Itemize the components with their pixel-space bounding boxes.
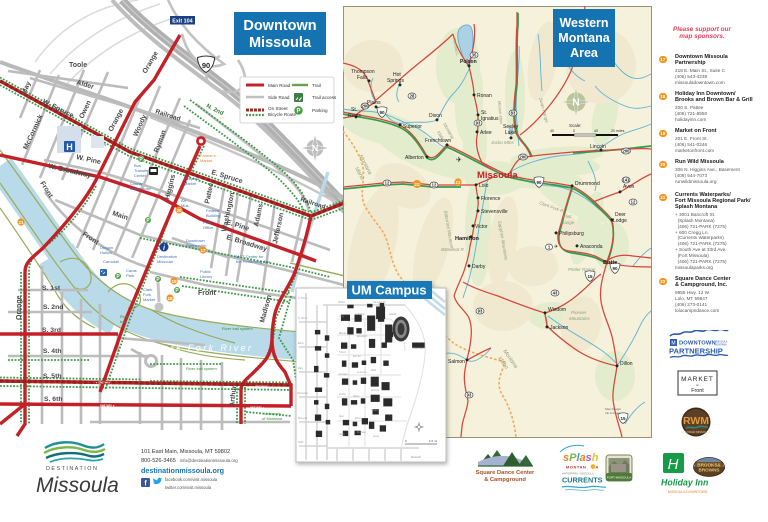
svg-text:trail: trail [120, 319, 127, 324]
svg-text:90: 90 [379, 110, 385, 115]
svg-text:Plains: Plains [367, 100, 381, 106]
svg-text:Railroad: Railroad [299, 196, 326, 211]
svg-text:Center: Center [134, 173, 147, 178]
svg-text:RUN WILD MISSOULA: RUN WILD MISSOULA [681, 430, 710, 434]
svg-text:Range: Range [561, 220, 575, 225]
svg-text:Exit 104: Exit 104 [172, 18, 192, 24]
svg-text:Trail: Trail [312, 83, 321, 88]
svg-text:Missoula: Missoula [249, 35, 312, 51]
svg-text:Courthouse: Courthouse [130, 186, 151, 191]
svg-text:RWM: RWM [683, 415, 709, 427]
svg-text:S. 2nd: S. 2nd [43, 304, 63, 311]
svg-text:Downtown: Downtown [243, 18, 316, 34]
svg-text:Campus Dr.: Campus Dr. [373, 301, 387, 304]
svg-text:Lolo: Lolo [479, 183, 489, 189]
svg-text:Market: Market [184, 181, 197, 186]
svg-text:Ryman: Ryman [153, 129, 168, 153]
svg-text:facebook.com/visit.missoula: facebook.com/visit.missoula [165, 477, 218, 482]
svg-text:Library: Library [200, 274, 212, 279]
svg-text:93: 93 [478, 309, 483, 314]
svg-text:90: 90 [536, 180, 542, 185]
svg-text:90: 90 [202, 61, 210, 70]
svg-text:40: 40 [550, 129, 554, 133]
svg-text:Pioneer: Pioneer [571, 310, 587, 315]
svg-text:Butte: Butte [603, 260, 617, 266]
svg-text:Main: Main [111, 210, 128, 222]
svg-text:Trail access: Trail access [312, 95, 337, 100]
svg-text:83: 83 [511, 111, 516, 116]
svg-text:Adams: Adams [389, 313, 397, 316]
svg-text:43: 43 [553, 291, 558, 296]
svg-text:info@destinationmissoula.org: info@destinationmissoula.org [180, 458, 238, 463]
svg-text:H: H [668, 456, 679, 473]
svg-text:Arlee: Arlee [480, 130, 492, 136]
svg-text:Anaconda: Anaconda [580, 244, 603, 250]
svg-text:MISSOULA DOWNTOWN: MISSOULA DOWNTOWN [668, 490, 708, 494]
svg-text:Mus.: Mus. [181, 203, 190, 208]
svg-text:MARKET: MARKET [681, 376, 714, 383]
svg-text:Mountains: Mountains [569, 316, 591, 321]
svg-text:Front: Front [198, 290, 217, 297]
svg-text:12: 12 [631, 200, 636, 205]
svg-text:21: 21 [18, 220, 24, 225]
svg-text:Market: Market [200, 158, 213, 163]
svg-text:Alberton: Alberton [405, 155, 424, 161]
svg-text:Madison: Madison [259, 294, 273, 323]
svg-text:Polson: Polson [460, 59, 477, 65]
svg-text:Front: Front [38, 180, 54, 199]
svg-text:Montana: Montana [558, 31, 610, 45]
svg-text:800-526-3465: 800-526-3465 [141, 458, 176, 464]
svg-text:19: 19 [171, 279, 177, 284]
svg-text:N. 2nd: N. 2nd [205, 103, 224, 117]
svg-text:Regis: Regis [348, 113, 361, 119]
svg-text:Front: Front [691, 388, 704, 394]
svg-text:twitter.com/visit.missoula: twitter.com/visit.missoula [165, 485, 212, 490]
svg-text:destinationmissoula.org: destinationmissoula.org [141, 466, 224, 475]
svg-text:Main Road: Main Road [268, 83, 291, 88]
svg-text:S. 6th E.: S. 6th E. [298, 317, 308, 320]
svg-text:Springs: Springs [387, 78, 404, 84]
svg-text:H: H [66, 142, 73, 152]
svg-text:PARTNERSHIP: PARTNERSHIP [669, 347, 723, 356]
svg-text:Ignatius: Ignatius [481, 116, 499, 122]
svg-text:141: 141 [623, 178, 631, 183]
svg-text:Market: Market [143, 297, 156, 302]
svg-text:Victor: Victor [475, 224, 488, 230]
svg-text:17: 17 [200, 248, 206, 253]
svg-text:20 miles: 20 miles [611, 129, 625, 133]
svg-text:40: 40 [594, 129, 598, 133]
svg-text:200: 200 [520, 155, 528, 160]
svg-text:MONTAN: MONTAN [566, 464, 586, 469]
svg-text:Flint: Flint [563, 214, 572, 219]
svg-text:On Street: On Street [268, 106, 288, 111]
svg-text:DESTINATION: DESTINATION [46, 466, 98, 472]
svg-text:Florence: Florence [481, 196, 501, 202]
svg-text:Dixon: Dixon [429, 113, 442, 119]
svg-text:12: 12 [385, 181, 390, 186]
svg-text:Western: Western [559, 16, 608, 30]
svg-text:& Campground: & Campground [484, 477, 526, 483]
svg-text:Missoula: Missoula [477, 170, 518, 181]
svg-text:✈: ✈ [456, 157, 462, 164]
svg-text:18: 18 [167, 296, 173, 301]
svg-text:Carousel: Carousel [103, 259, 119, 264]
svg-text:23: 23 [456, 180, 461, 185]
svg-text:Hamilton: Hamilton [455, 236, 480, 242]
svg-text:BROWNS: BROWNS [699, 468, 720, 473]
svg-text:N: N [312, 143, 318, 153]
svg-text:Park: Park [126, 273, 134, 278]
svg-text:Falls: Falls [357, 75, 368, 81]
svg-text:Ronan: Ronan [477, 93, 492, 99]
svg-text:0: 0 [573, 129, 575, 133]
svg-text:Lincoln: Lincoln [590, 144, 606, 150]
svg-text:Holiday Inn: Holiday Inn [661, 478, 708, 488]
svg-text:Square Dance Center: Square Dance Center [476, 470, 535, 476]
svg-text:Bicycle Route: Bicycle Route [268, 112, 297, 117]
svg-text:✈: ✈ [554, 244, 558, 250]
svg-text:Superior: Superior [403, 124, 422, 130]
svg-text:Jocko Mtns: Jocko Mtns [490, 140, 515, 145]
svg-text:FORT MISSOULA: FORT MISSOULA [607, 476, 631, 480]
svg-text:Side Road: Side Road [268, 95, 290, 100]
svg-text:Area: Area [570, 46, 599, 60]
svg-text:Missoula: Missoula [36, 474, 119, 497]
svg-text:Building: Building [206, 213, 220, 218]
svg-text:Stevensville: Stevensville [481, 209, 508, 215]
svg-text:28: 28 [410, 94, 415, 99]
svg-text:Wisdom: Wisdom [548, 307, 566, 313]
svg-text:CURRENTS: CURRENTS [562, 476, 603, 485]
svg-text:Darby: Darby [472, 264, 486, 270]
svg-text:Philipsburg: Philipsburg [559, 231, 584, 237]
svg-text:200: 200 [623, 149, 631, 154]
svg-text:101 East Main, Missoula, MT 59: 101 East Main, Missoula, MT 59802 [141, 449, 230, 455]
svg-text:35: 35 [472, 53, 477, 58]
svg-text:Arthur: Arthur [338, 301, 345, 304]
svg-text:Parking: Parking [312, 108, 328, 113]
svg-text:McCormick: McCormick [22, 114, 44, 151]
svg-text:Hollow: Hollow [100, 250, 112, 255]
svg-text:N: N [572, 98, 579, 109]
svg-text:Orange: Orange [16, 295, 23, 320]
svg-text:20: 20 [176, 208, 182, 213]
svg-text:W. Pine: W. Pine [76, 154, 102, 166]
svg-text:on: on [696, 383, 700, 387]
svg-text:Woody: Woody [132, 114, 148, 138]
svg-text:Toole: Toole [69, 62, 87, 69]
svg-text:Scale:: Scale: [569, 123, 582, 128]
svg-text:Gallagher: Gallagher [355, 313, 365, 316]
svg-text:Pintler Range: Pintler Range [568, 267, 596, 272]
svg-text:90: 90 [612, 266, 618, 271]
svg-text:S. 1st: S. 1st [42, 285, 61, 292]
svg-text:Lake: Lake [505, 130, 516, 136]
svg-text:Lodge: Lodge [613, 218, 627, 224]
svg-text:Avon: Avon [623, 184, 635, 190]
svg-text:Drummond: Drummond [575, 181, 600, 187]
svg-text:P: P [296, 109, 300, 115]
svg-text:Frenchtown: Frenchtown [425, 138, 451, 144]
svg-text:12: 12 [432, 183, 437, 188]
svg-text:22: 22 [414, 182, 420, 188]
svg-text:A: A [596, 464, 599, 469]
svg-text:Adams: Adams [253, 203, 265, 227]
svg-text:Missoula: Missoula [157, 259, 174, 264]
svg-text:Urey: Urey [339, 315, 345, 318]
svg-text:sPlash: sPlash [563, 452, 599, 464]
svg-text:Pattee: Pattee [204, 182, 215, 204]
svg-text:UM Campus: UM Campus [351, 283, 426, 298]
svg-text:Office: Office [203, 225, 214, 230]
svg-text:S. 5th E.: S. 5th E. [298, 297, 308, 300]
svg-text:15: 15 [587, 274, 593, 279]
svg-text:the Performing Arts: the Performing Arts [236, 259, 270, 264]
svg-text:Bitterroot R.: Bitterroot R. [441, 247, 465, 252]
